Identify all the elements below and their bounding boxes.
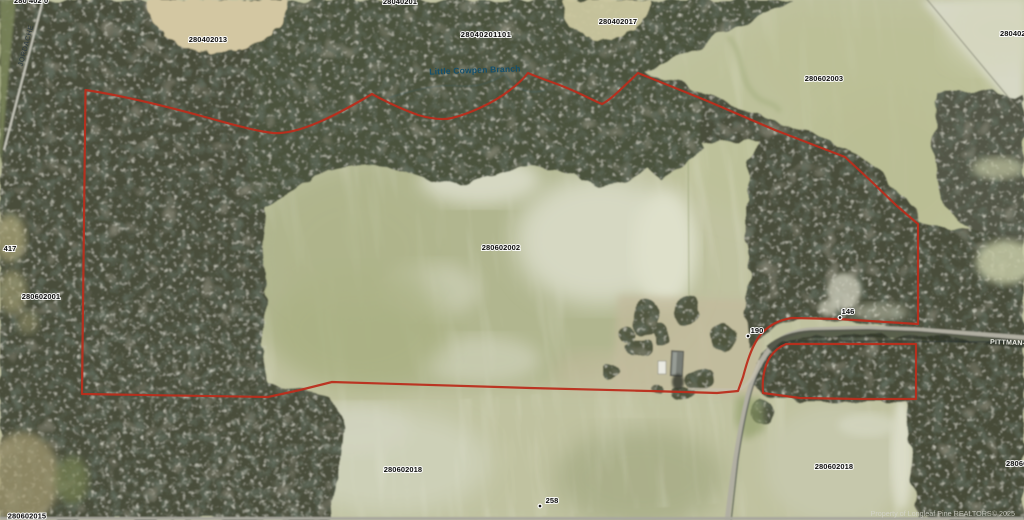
svg-text:280602018: 280602018: [384, 465, 422, 474]
svg-text:2804020: 2804020: [1000, 29, 1024, 38]
svg-text:280 402 0: 280 402 0: [14, 0, 48, 5]
svg-text:190: 190: [751, 326, 764, 335]
svg-text:280602002: 280602002: [482, 243, 520, 252]
svg-text:280602003: 280602003: [805, 74, 843, 83]
svg-text:28040201: 28040201: [383, 0, 417, 6]
svg-text:PITTMAN-L: PITTMAN-L: [990, 339, 1024, 347]
svg-text:Property of Longleaf Pine REAL: Property of Longleaf Pine REALTORS© 2025: [871, 509, 1015, 518]
svg-text:280402017: 280402017: [599, 17, 637, 26]
svg-text:280602: 280602: [1006, 459, 1024, 468]
svg-text:280602018: 280602018: [815, 462, 853, 471]
svg-text:280602015: 280602015: [8, 512, 46, 520]
svg-text:280402013: 280402013: [189, 35, 227, 44]
svg-text:28040201101: 28040201101: [461, 30, 511, 39]
svg-text:417: 417: [4, 244, 17, 253]
svg-text:258: 258: [546, 496, 559, 505]
svg-text:280602001: 280602001: [22, 292, 60, 301]
svg-text:146: 146: [842, 307, 855, 316]
